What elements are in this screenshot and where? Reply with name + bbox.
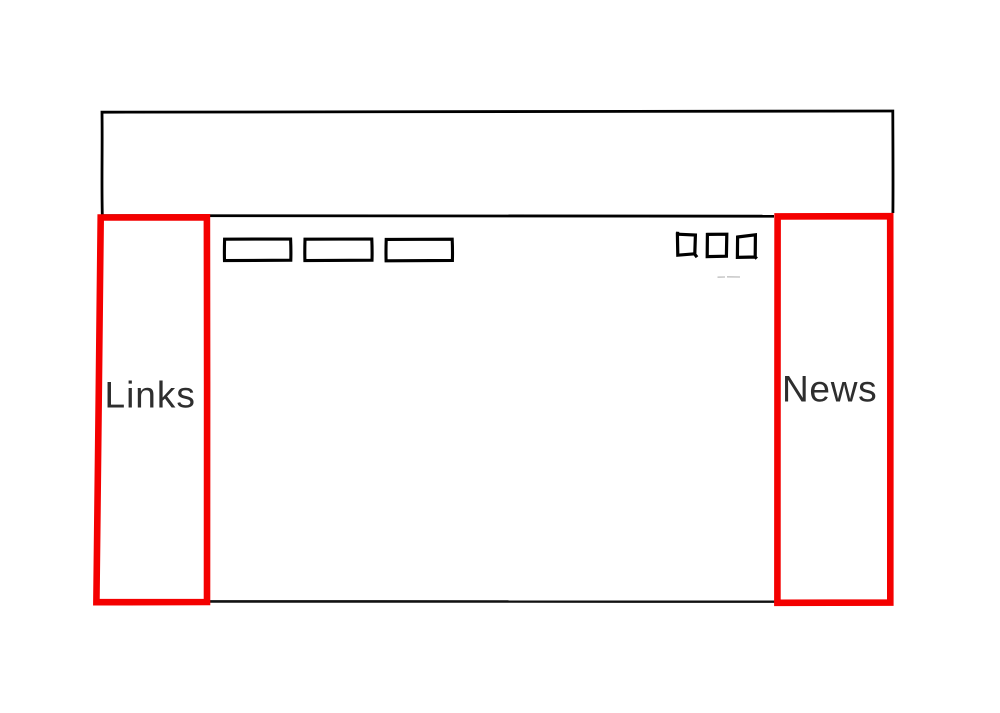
svg-text:News: News: [782, 369, 877, 410]
svg-text:Links: Links: [105, 375, 196, 416]
